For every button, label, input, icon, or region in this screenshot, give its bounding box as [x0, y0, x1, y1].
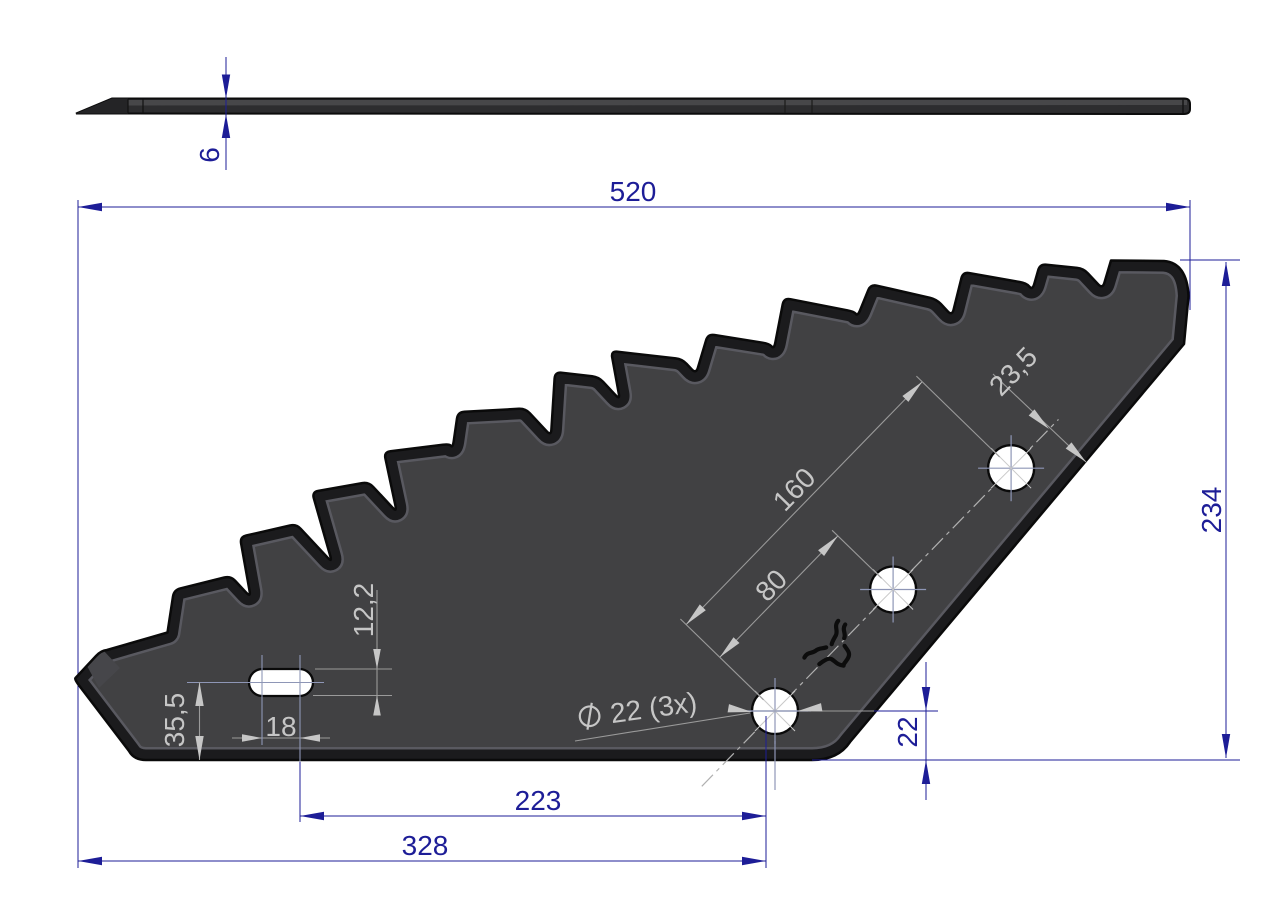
- svg-text:22: 22: [892, 716, 923, 747]
- svg-text:35,5: 35,5: [159, 693, 190, 748]
- svg-text:223: 223: [515, 785, 562, 816]
- svg-text:12,2: 12,2: [348, 583, 379, 638]
- svg-text:328: 328: [402, 830, 449, 861]
- svg-text:6: 6: [194, 147, 225, 163]
- svg-text:234: 234: [1196, 487, 1227, 534]
- svg-text:18: 18: [265, 711, 296, 742]
- svg-text:520: 520: [610, 176, 657, 207]
